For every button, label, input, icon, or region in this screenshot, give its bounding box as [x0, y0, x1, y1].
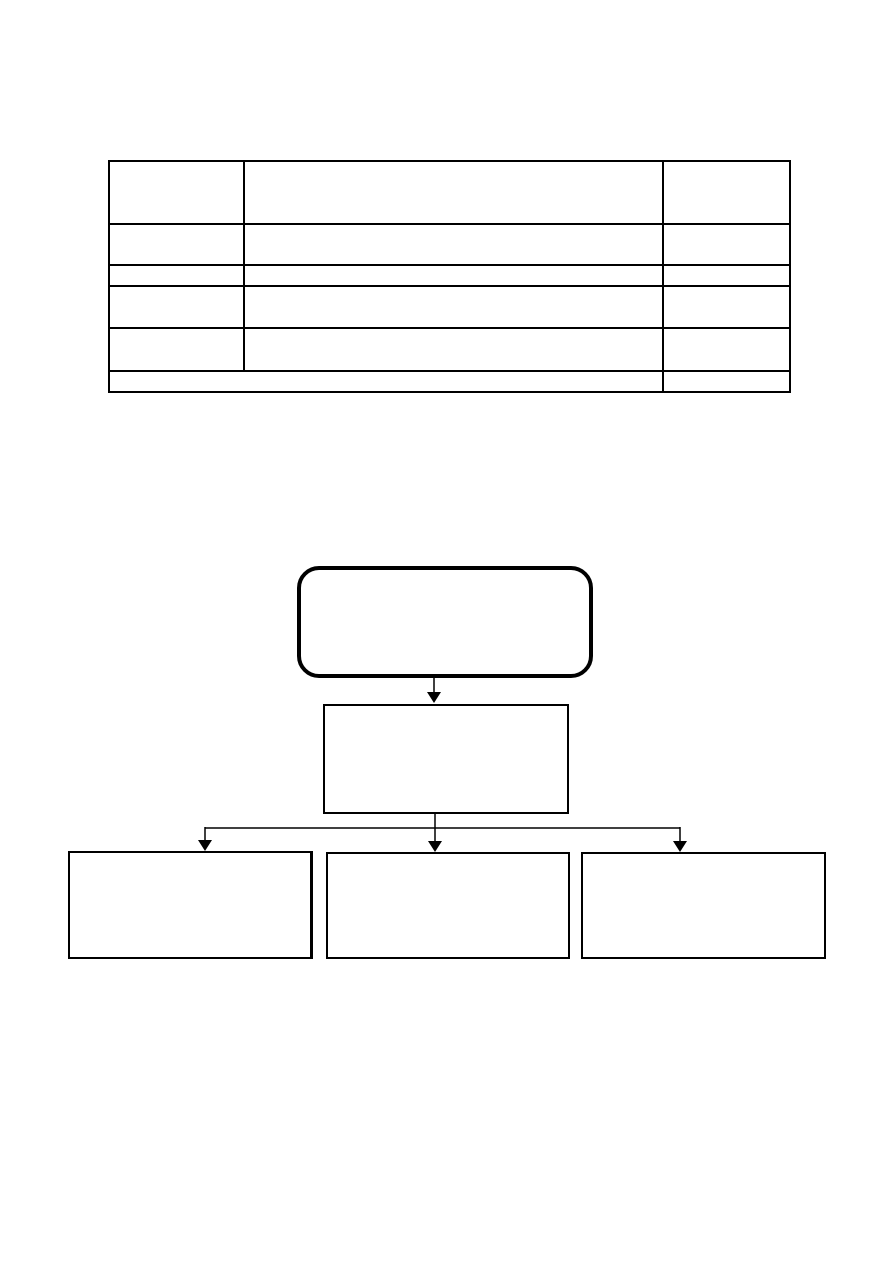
document-table	[108, 160, 791, 393]
table-cell	[109, 224, 244, 265]
flowchart-root-node	[297, 566, 593, 678]
flowchart-level2-node	[323, 704, 569, 814]
document-page	[0, 0, 893, 1263]
arrowhead-to-level2	[427, 692, 441, 703]
table-cell	[109, 328, 244, 371]
flowchart-child-node-right	[581, 852, 826, 959]
table-row	[109, 224, 790, 265]
table-cell-merged	[109, 371, 663, 392]
table-cell	[244, 161, 663, 224]
table-row	[109, 328, 790, 371]
table-cell	[244, 224, 663, 265]
table-cell	[663, 371, 790, 392]
table-row	[109, 371, 790, 392]
arrowhead-to-child-left	[198, 840, 212, 851]
table-cell	[663, 286, 790, 328]
table-cell	[663, 265, 790, 286]
table-row	[109, 265, 790, 286]
flowchart-child-node-middle	[326, 852, 570, 959]
flowchart-child-node-left	[68, 851, 313, 959]
table-cell	[244, 328, 663, 371]
table-cell	[244, 265, 663, 286]
table-cell	[663, 328, 790, 371]
arrowhead-to-child-right	[673, 841, 687, 852]
table-cell	[109, 265, 244, 286]
table-cell	[109, 161, 244, 224]
table-cell	[663, 224, 790, 265]
table-cell	[244, 286, 663, 328]
table-cell	[663, 161, 790, 224]
table-row	[109, 286, 790, 328]
arrowhead-to-child-middle	[428, 841, 442, 852]
table-cell	[109, 286, 244, 328]
table-row	[109, 161, 790, 224]
